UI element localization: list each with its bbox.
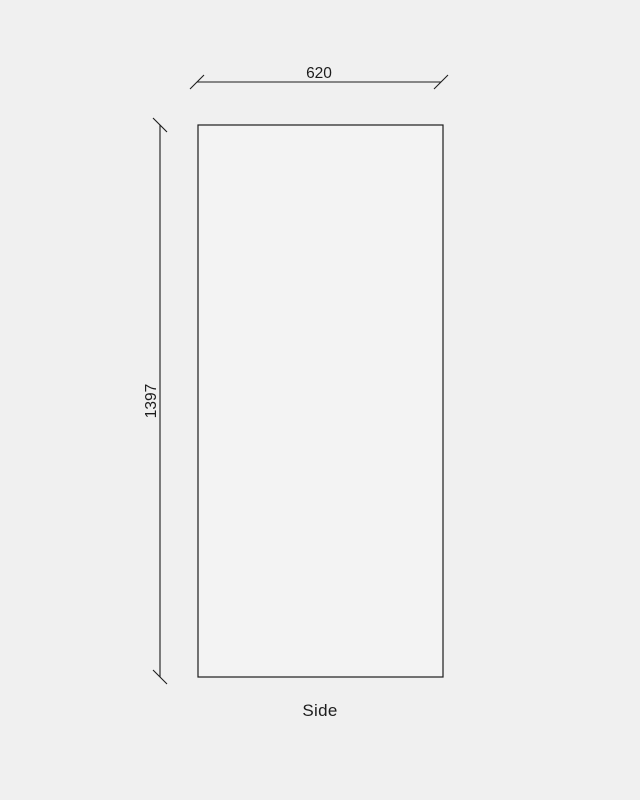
width-dimension: 620 xyxy=(190,65,448,89)
height-dimension-value: 1397 xyxy=(143,384,160,418)
height-dimension: 1397 xyxy=(143,118,167,684)
side-view-drawing: 620 1397 Side xyxy=(0,0,640,800)
panel-outline xyxy=(198,125,443,677)
technical-drawing-canvas: 620 1397 Side xyxy=(0,0,640,800)
width-dimension-value: 620 xyxy=(306,65,332,82)
view-label: Side xyxy=(302,701,337,720)
